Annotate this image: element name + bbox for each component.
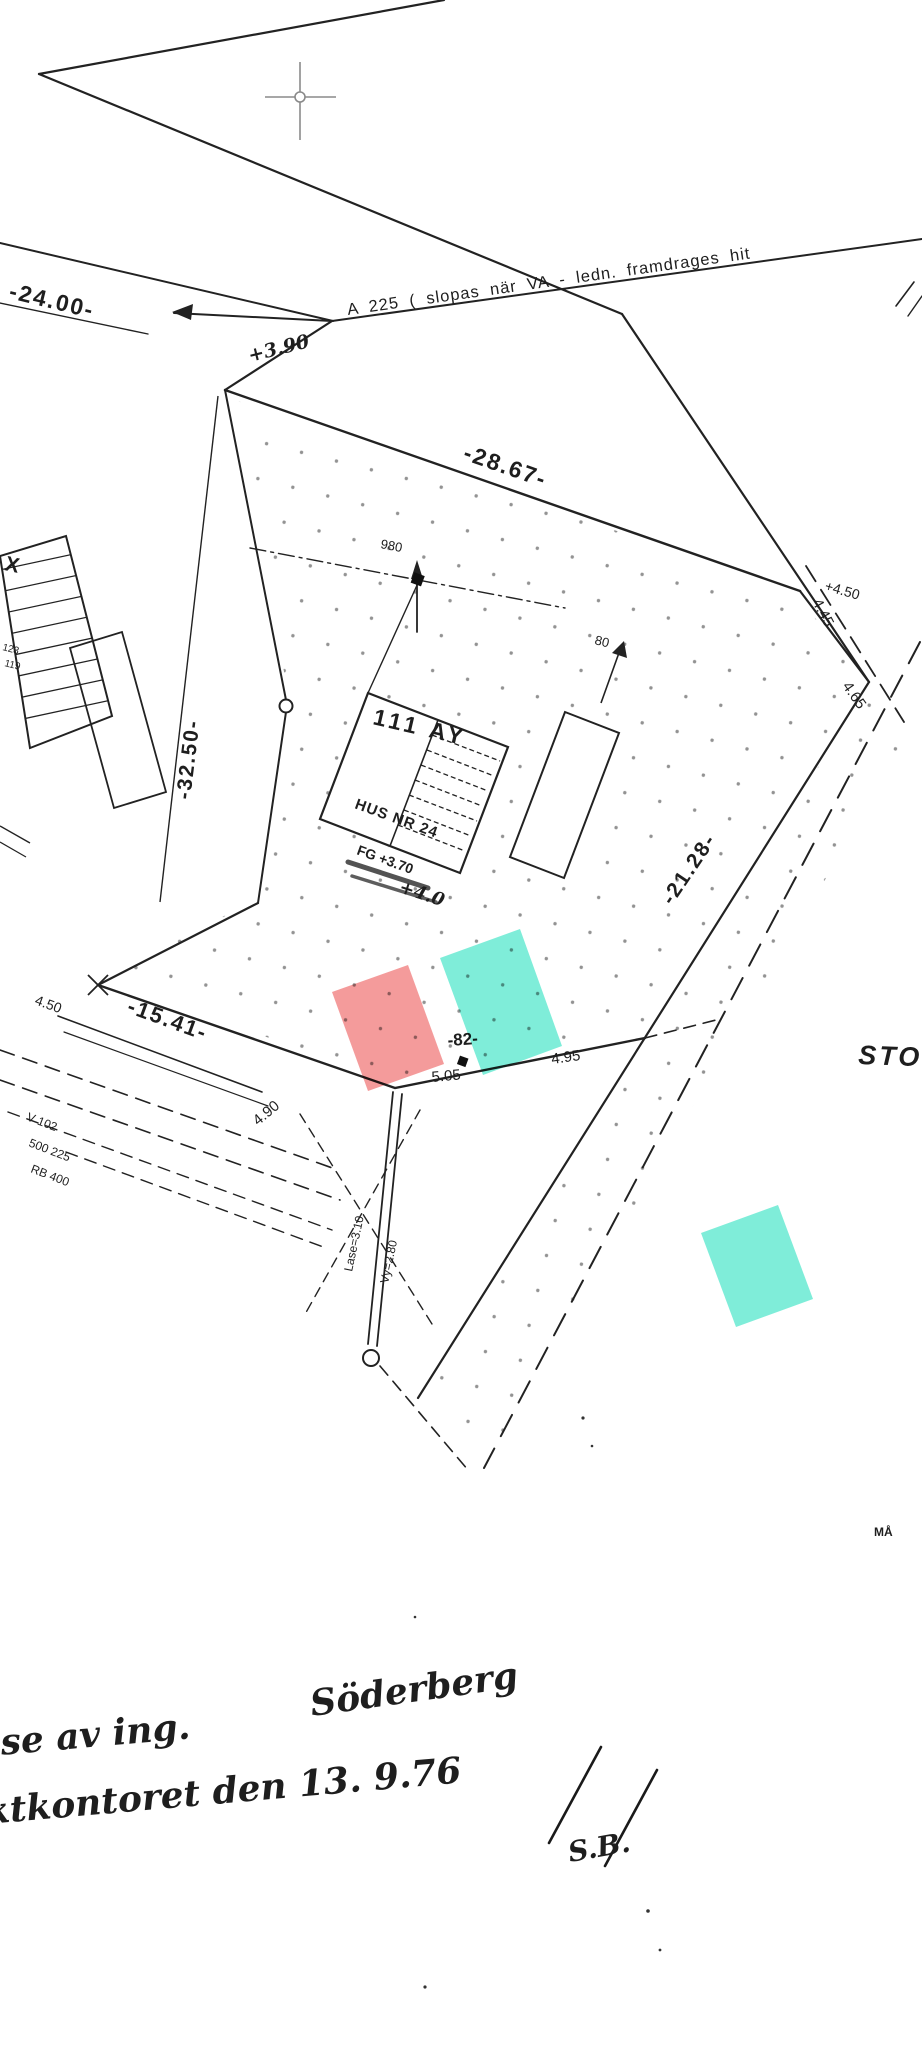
dim-line-3250 (160, 396, 218, 902)
street-name-partial: STO (858, 1040, 922, 1072)
left-edge-line-fragments (0, 826, 30, 857)
site-plan-scan: -24.00- A 225 ( slopas när VA - ledn. fr… (0, 0, 922, 2048)
dim-label-490: 4.90 (250, 1097, 283, 1129)
survey-cross-mark (265, 62, 336, 140)
hand-line2: ktkontoret den 13. 9.76 (0, 1749, 463, 1833)
note-partial: MÅ (874, 1524, 893, 1539)
utility-label-3: RB 400 (29, 1162, 72, 1190)
pipe-note-2: Vy=2.80 (377, 1238, 400, 1284)
left-building-hatched (0, 536, 166, 808)
spot-height-450-right: +4.50 (823, 578, 862, 603)
utility-label-2: 500 225 (27, 1136, 73, 1165)
manhole-circle (363, 1350, 379, 1366)
north-boundary-lines (39, 0, 622, 314)
dim-label-495: 4.95 (550, 1047, 581, 1068)
boundary-point-circle (280, 700, 293, 713)
dim-label-24: -24.00- (7, 278, 98, 324)
left-arrowhead (172, 304, 193, 320)
hand-line1a: lse av ing. (0, 1705, 192, 1765)
va-note-label: A 225 ( slopas när VA - ledn. framdrages… (346, 244, 751, 318)
handwritten-note: lse av ing. Söderberg ktkontoret den 13.… (0, 1654, 657, 1869)
hand-line1b: Söderberg (307, 1654, 520, 1725)
plan-drawing: -24.00- A 225 ( slopas när VA - ledn. fr… (0, 0, 922, 2048)
hand-initials: S.B. (565, 1826, 632, 1869)
corner-x-mark (88, 975, 108, 995)
dim-label-505: 5.05 (431, 1067, 462, 1086)
teal-highlight-2 (701, 1205, 813, 1327)
spot-height-390: +3.90 (246, 330, 312, 366)
dim-label-450-left: 4.50 (33, 992, 64, 1016)
dim-label-3250: -32.50- (172, 718, 205, 801)
utility-label-1: V 102 (25, 1110, 60, 1134)
